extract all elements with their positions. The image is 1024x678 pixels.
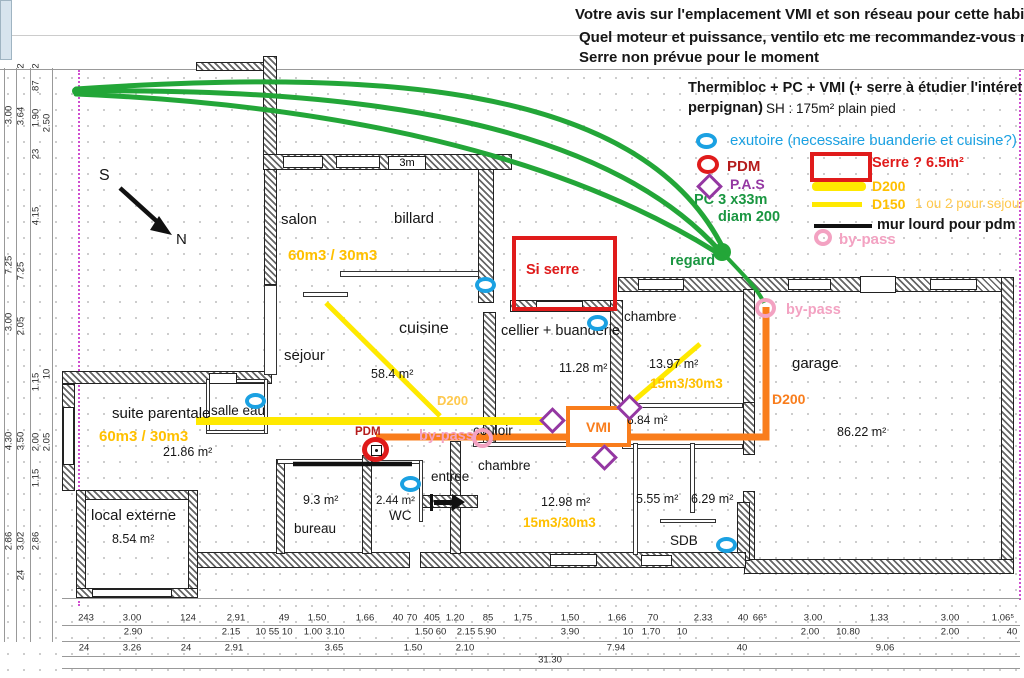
compass-arrow bbox=[120, 188, 162, 226]
room-area-555: 5.55 m² bbox=[636, 492, 678, 506]
room-label-chambre-nord: chambre bbox=[624, 309, 677, 324]
project-line-2: perpignan) bbox=[688, 100, 763, 116]
bypass-mid-label: by-pass bbox=[419, 428, 474, 444]
room-area-cuisine: 58.4 m² bbox=[371, 367, 413, 381]
surface-note: SH : 175m² plain pied bbox=[766, 101, 896, 116]
si-serre-box: Si serre bbox=[512, 236, 617, 311]
legend-pc-label-2: diam 200 bbox=[718, 209, 780, 225]
flow-chambre-sud: 15m3/30m3 bbox=[523, 515, 596, 530]
flow-chambre-nord: 15m3/30m3 bbox=[650, 376, 723, 391]
legend-sejour-question: 1 ou 2 pour sejour ? bbox=[915, 196, 1024, 211]
vmi-label: VMI bbox=[586, 419, 611, 435]
exutoire-icon bbox=[245, 393, 266, 409]
room-area-garage: 86.22 m² bbox=[837, 425, 886, 439]
project-line-1: Thermibloc + PC + VMI (+ serre à étudier… bbox=[688, 80, 1024, 96]
duct-d150-chambre bbox=[629, 344, 700, 405]
room-label-garage: garage bbox=[792, 355, 839, 372]
pdm-switch-glyph bbox=[371, 445, 382, 456]
exutoire-icon bbox=[475, 277, 496, 293]
pc-pipe-3 bbox=[76, 94, 716, 252]
garage-d200-label: D200 bbox=[772, 391, 805, 407]
question-line-1: Votre avis sur l'emplacement VMI et son … bbox=[575, 6, 1024, 23]
bypass-icon bbox=[755, 298, 776, 318]
room-area-bureau: 9.3 m² bbox=[303, 493, 338, 507]
duct-d200-label: D200 bbox=[437, 393, 468, 408]
room-label-entree: entree bbox=[431, 469, 469, 484]
flow-salon: 60m3 / 30m3 bbox=[288, 247, 377, 264]
legend-mur-label: mur lourd pour pdm bbox=[877, 217, 1016, 233]
exutoire-icon bbox=[716, 537, 737, 553]
legend-pas-label: P.A.S bbox=[730, 176, 765, 192]
room-area-chambre-nord: 13.97 m² bbox=[649, 357, 698, 371]
room-label-billard: billard bbox=[394, 210, 434, 227]
legend-serre-label: Serre ? 6.5m² bbox=[872, 155, 964, 171]
pc-pipe-tail bbox=[722, 252, 764, 303]
room-area-cellier: 11.28 m² bbox=[559, 361, 607, 375]
legend-exutoire-label: exutoire (necessaire buanderie et cuisin… bbox=[730, 132, 1017, 149]
room-label-suite: suite parentale bbox=[112, 405, 210, 422]
legend-d150-label: D150 bbox=[872, 196, 905, 212]
room-label-salon: salon bbox=[281, 211, 317, 228]
entry-arrow-bar bbox=[430, 494, 433, 511]
room-label-wc: WC bbox=[389, 508, 412, 523]
bypass-garage-label: by-pass bbox=[786, 302, 841, 318]
entry-arrow-head bbox=[452, 494, 465, 511]
legend-pdm-icon bbox=[697, 155, 719, 174]
pdm-icon bbox=[362, 437, 389, 462]
si-serre-label: Si serre bbox=[526, 262, 579, 278]
legend-exutoire-icon bbox=[696, 133, 717, 149]
legend-bypass-label: by-pass bbox=[839, 231, 896, 248]
room-area-chambre-sud: 12.98 m² bbox=[541, 495, 590, 509]
legend-bypass-icon bbox=[814, 229, 832, 246]
legend-pdm-label: PDM bbox=[727, 158, 760, 175]
room-label-sdb: SDB bbox=[670, 533, 698, 548]
room-label-sejour: sejour bbox=[284, 347, 325, 364]
room-label-local-externe: local externe bbox=[91, 507, 176, 524]
regard-label: regard bbox=[670, 253, 715, 269]
floor-plan-canvas: 2433.001242.91491.501.6640704051.20851.7… bbox=[0, 0, 1024, 678]
entry-arrow-shaft bbox=[434, 500, 452, 505]
room-area-wc: 2.44 m² bbox=[376, 495, 415, 507]
compass-south-label: S bbox=[99, 167, 110, 185]
question-line-2: Quel moteur et puissance, ventilo etc me… bbox=[579, 29, 1024, 46]
bypass-icon bbox=[472, 428, 493, 448]
pc-pipe-start bbox=[72, 87, 80, 95]
room-area-suite: 21.86 m² bbox=[163, 445, 212, 459]
room-label-chambre-sud: chambre bbox=[478, 458, 531, 473]
room-label-bureau: bureau bbox=[294, 521, 336, 536]
room-label-cuisine: cuisine bbox=[399, 320, 449, 338]
flow-suite: 60m3 / 30m3 bbox=[99, 428, 188, 445]
question-line-3: Serre non prévue pour le moment bbox=[579, 49, 819, 66]
room-area-629: 6.29 m² bbox=[691, 492, 733, 506]
room-area-local-externe: 8.54 m² bbox=[112, 532, 154, 546]
legend-d200-label: D200 bbox=[872, 178, 905, 194]
exutoire-icon bbox=[587, 315, 608, 331]
compass-north-label: N bbox=[176, 231, 187, 248]
exutoire-icon bbox=[400, 476, 421, 492]
